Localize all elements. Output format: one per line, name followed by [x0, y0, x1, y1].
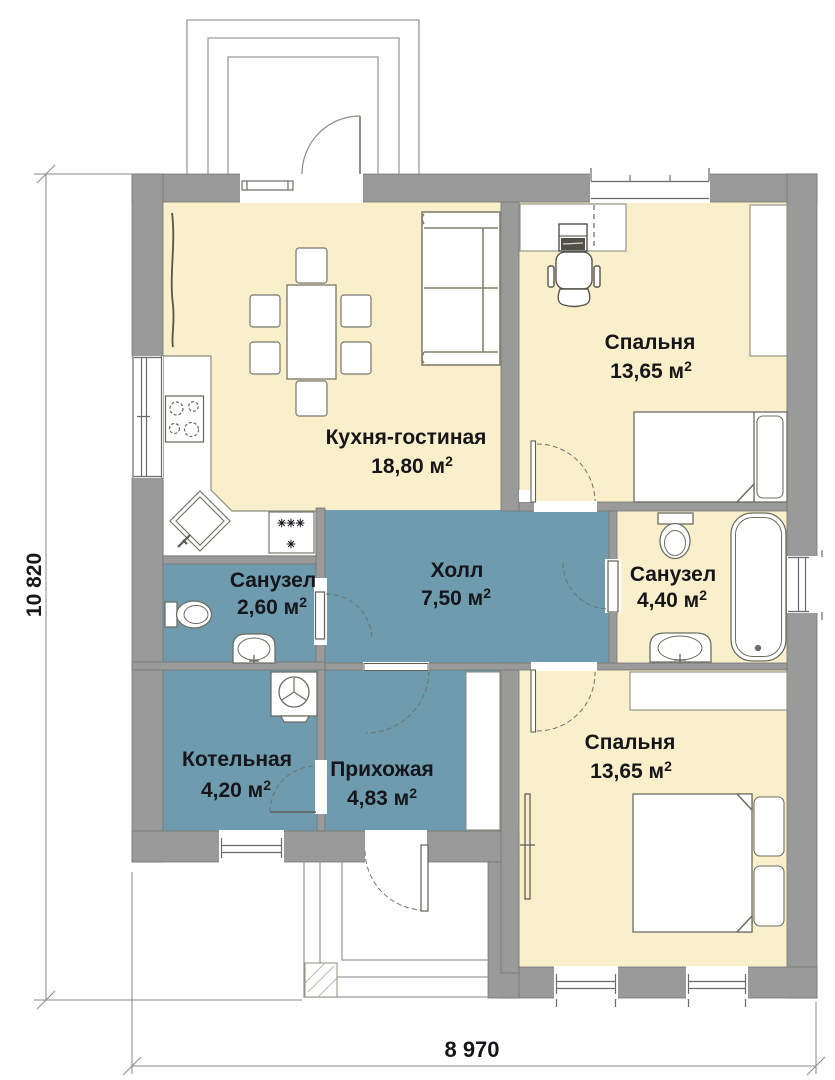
svg-text:Спальня: Спальня — [605, 331, 696, 354]
svg-text:Спальня: Спальня — [585, 731, 676, 754]
svg-text:2,60 м2: 2,60 м2 — [237, 594, 307, 619]
svg-text:4,40 м2: 4,40 м2 — [637, 587, 707, 612]
svg-text:13,65 м2: 13,65 м2 — [590, 758, 672, 783]
svg-text:13,65 м2: 13,65 м2 — [610, 358, 692, 383]
svg-text:Кухня-гостиная: Кухня-гостиная — [326, 426, 487, 449]
svg-text:18,80 м2: 18,80 м2 — [371, 453, 453, 478]
svg-text:✳: ✳ — [286, 539, 295, 551]
svg-text:4,83 м2: 4,83 м2 — [347, 785, 417, 810]
svg-text:Котельная: Котельная — [182, 748, 292, 771]
svg-text:Санузел: Санузел — [630, 563, 716, 586]
svg-text:7,50 м2: 7,50 м2 — [421, 585, 491, 610]
svg-text:Холл: Холл — [431, 559, 484, 582]
svg-text:✳✳✳: ✳✳✳ — [277, 518, 305, 530]
svg-text:10 820: 10 820 — [23, 553, 46, 617]
svg-text:Прихожая: Прихожая — [330, 758, 434, 781]
svg-text:Санузел: Санузел — [230, 569, 316, 592]
svg-text:4,20 м2: 4,20 м2 — [201, 777, 271, 802]
svg-text:8 970: 8 970 — [444, 1037, 499, 1062]
